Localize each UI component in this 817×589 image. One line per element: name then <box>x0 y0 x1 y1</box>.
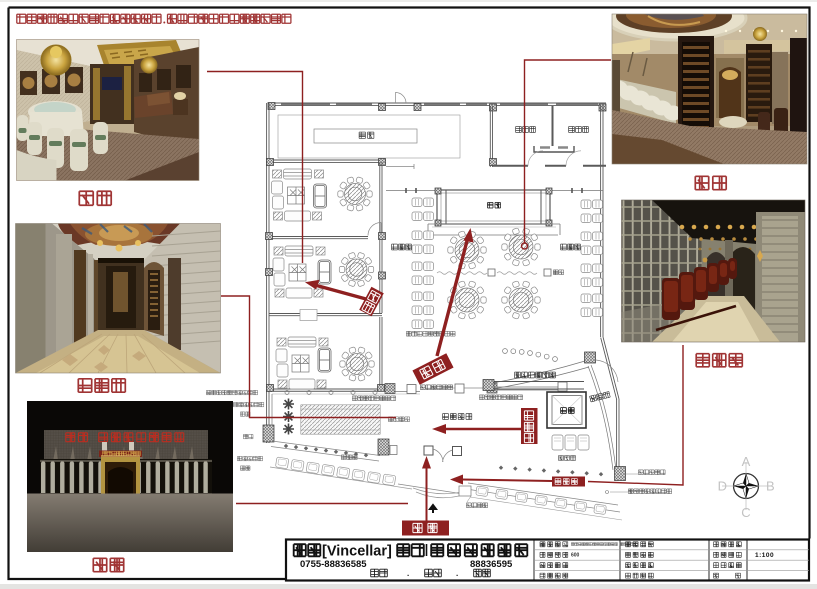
svg-text:0755-88836585: 0755-88836585 <box>300 559 367 570</box>
svg-text:A: A <box>742 454 751 469</box>
svg-text:D: D <box>718 479 727 494</box>
svg-text:1:100: 1:100 <box>755 552 774 559</box>
svg-text:600: 600 <box>571 553 580 559</box>
svg-text:[Vincellar]: [Vincellar] <box>322 544 392 560</box>
svg-text:B: B <box>766 479 775 494</box>
svg-text:88836595: 88836595 <box>470 559 513 570</box>
svg-text:.: . <box>456 569 458 578</box>
svg-text:.: . <box>407 569 409 578</box>
svg-text:C: C <box>741 505 750 520</box>
